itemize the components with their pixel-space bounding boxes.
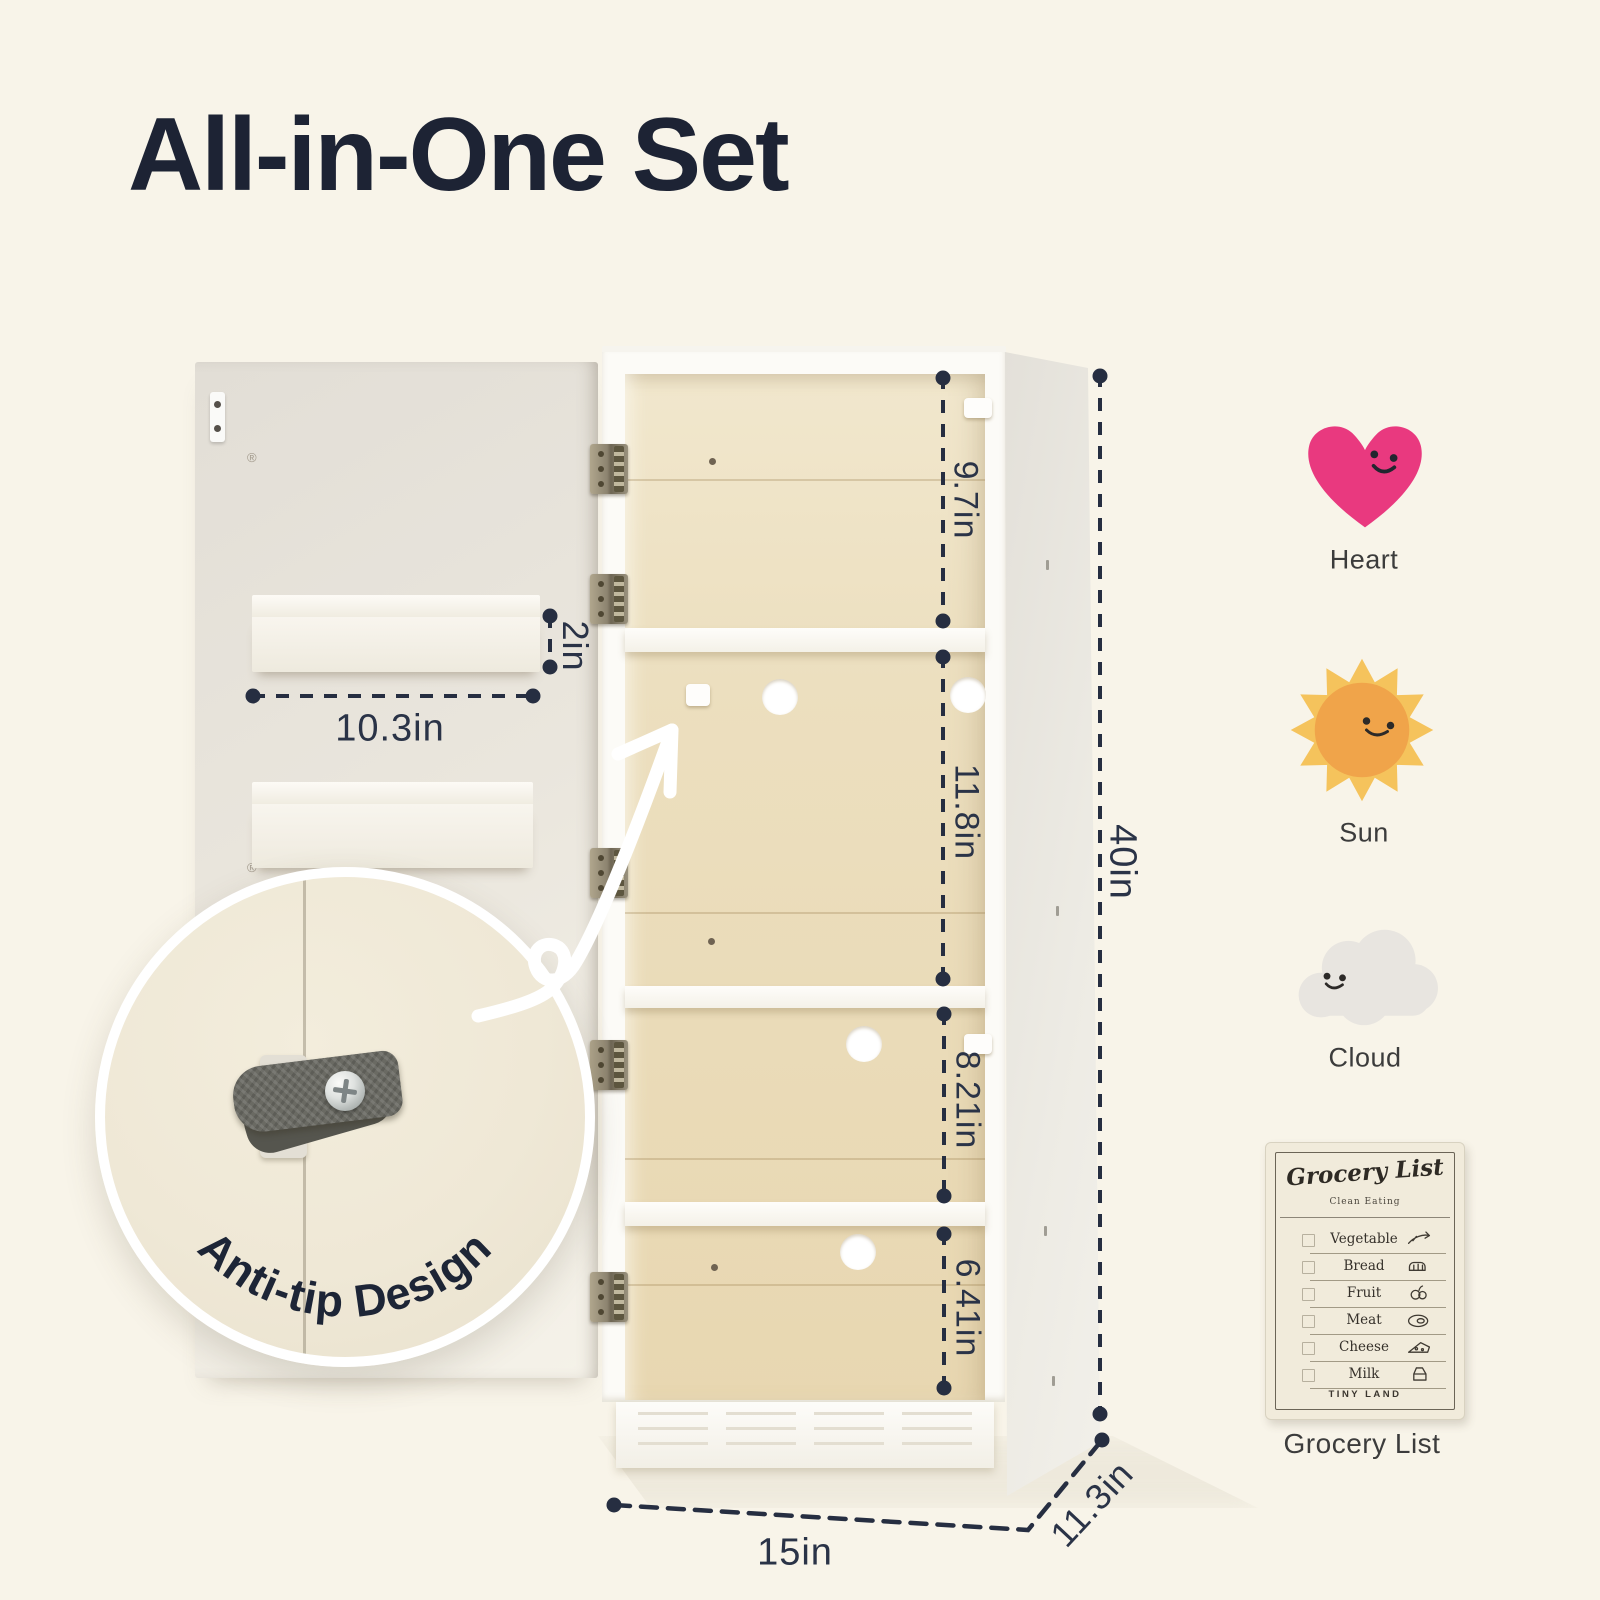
milk-icon: [1406, 1364, 1432, 1384]
checkbox: [1302, 1342, 1315, 1355]
grocery-item-label: Milk: [1324, 1366, 1404, 1382]
dim-label-compartment-3: 8.21in: [948, 1051, 987, 1150]
back-panel-hole: [840, 1234, 876, 1270]
back-panel-hole: [950, 677, 986, 713]
dim-line-door-shelf-width: [252, 694, 534, 698]
door-shelf-bin: [252, 595, 540, 672]
checkbox: [1302, 1315, 1315, 1328]
checkbox: [1302, 1288, 1315, 1301]
grocery-item-label: Fruit: [1324, 1285, 1404, 1301]
hinge: [590, 1040, 628, 1090]
grocery-list-caption: Grocery List: [1284, 1428, 1441, 1460]
infographic-canvas: All-in-One Set ® ® 2in 10.3in: [0, 0, 1600, 1600]
pointer-arrow-icon: [460, 700, 700, 1040]
registered-mark: ®: [247, 450, 257, 465]
dim-line-compartment-2: [941, 655, 945, 981]
page-title: All-in-One Set: [128, 96, 788, 215]
shelf: [625, 628, 985, 652]
fruit-icon: [1406, 1283, 1432, 1303]
hinge: [590, 1272, 628, 1322]
checkbox: [1302, 1261, 1315, 1274]
vegetable-icon: [1406, 1229, 1432, 1249]
checkbox: [1302, 1234, 1315, 1247]
bread-icon: [1406, 1256, 1432, 1276]
cloud-icon: [1278, 915, 1450, 1033]
grocery-item-label: Meat: [1324, 1312, 1404, 1328]
dim-label-compartment-4: 6.41in: [948, 1259, 987, 1358]
grocery-row: Meat: [1266, 1308, 1464, 1335]
svg-text:Anti-tip Design: Anti-tip Design: [189, 1221, 501, 1327]
hinge: [590, 574, 628, 624]
dim-dot: [246, 689, 261, 704]
accessory-label-heart: Heart: [1330, 545, 1399, 576]
grocery-item-label: Cheese: [1324, 1339, 1404, 1355]
cheese-icon: [1406, 1337, 1432, 1357]
grocery-list-card: Grocery List Clean Eating Vegetable Brea…: [1265, 1142, 1465, 1420]
dim-label-door-shelf-depth: 2in: [554, 620, 596, 671]
grocery-row: Milk: [1266, 1362, 1464, 1389]
accessory-label-sun: Sun: [1339, 818, 1389, 849]
sun-icon: [1287, 655, 1437, 805]
grocery-item-label: Bread: [1324, 1258, 1404, 1274]
meat-icon: [1406, 1310, 1432, 1330]
dim-line-compartment-4: [942, 1232, 946, 1390]
accessory-label-cloud: Cloud: [1328, 1043, 1401, 1074]
back-panel-hole: [762, 679, 798, 715]
shelf: [625, 1202, 985, 1226]
card-brand: TINY LAND: [1266, 1389, 1464, 1400]
grocery-row: Cheese: [1266, 1335, 1464, 1362]
card-subtitle: Clean Eating: [1266, 1197, 1464, 1207]
dim-label-compartment-2: 11.8in: [947, 764, 986, 860]
grocery-row: Vegetable: [1266, 1227, 1464, 1254]
heart-icon: [1293, 410, 1437, 536]
dim-label-door-shelf-width: 10.3in: [335, 708, 445, 751]
grocery-row: Bread: [1266, 1254, 1464, 1281]
card-divider: [1280, 1217, 1450, 1218]
dim-label-compartment-1: 9.7in: [946, 461, 985, 540]
grocery-item-label: Vegetable: [1324, 1231, 1404, 1247]
door-catch: [964, 398, 992, 418]
grocery-row: Fruit: [1266, 1281, 1464, 1308]
door-latch-plate: [210, 392, 225, 442]
dim-line-compartment-1: [941, 376, 945, 622]
dim-line-compartment-3: [942, 1012, 946, 1198]
dim-label-width: 15in: [757, 1532, 833, 1575]
dim-label-overall-height: 40in: [1101, 824, 1144, 900]
cabinet-side-panel: [1005, 350, 1105, 1500]
back-panel-hole: [846, 1026, 882, 1062]
checkbox: [1302, 1369, 1315, 1382]
hinge: [590, 444, 628, 494]
